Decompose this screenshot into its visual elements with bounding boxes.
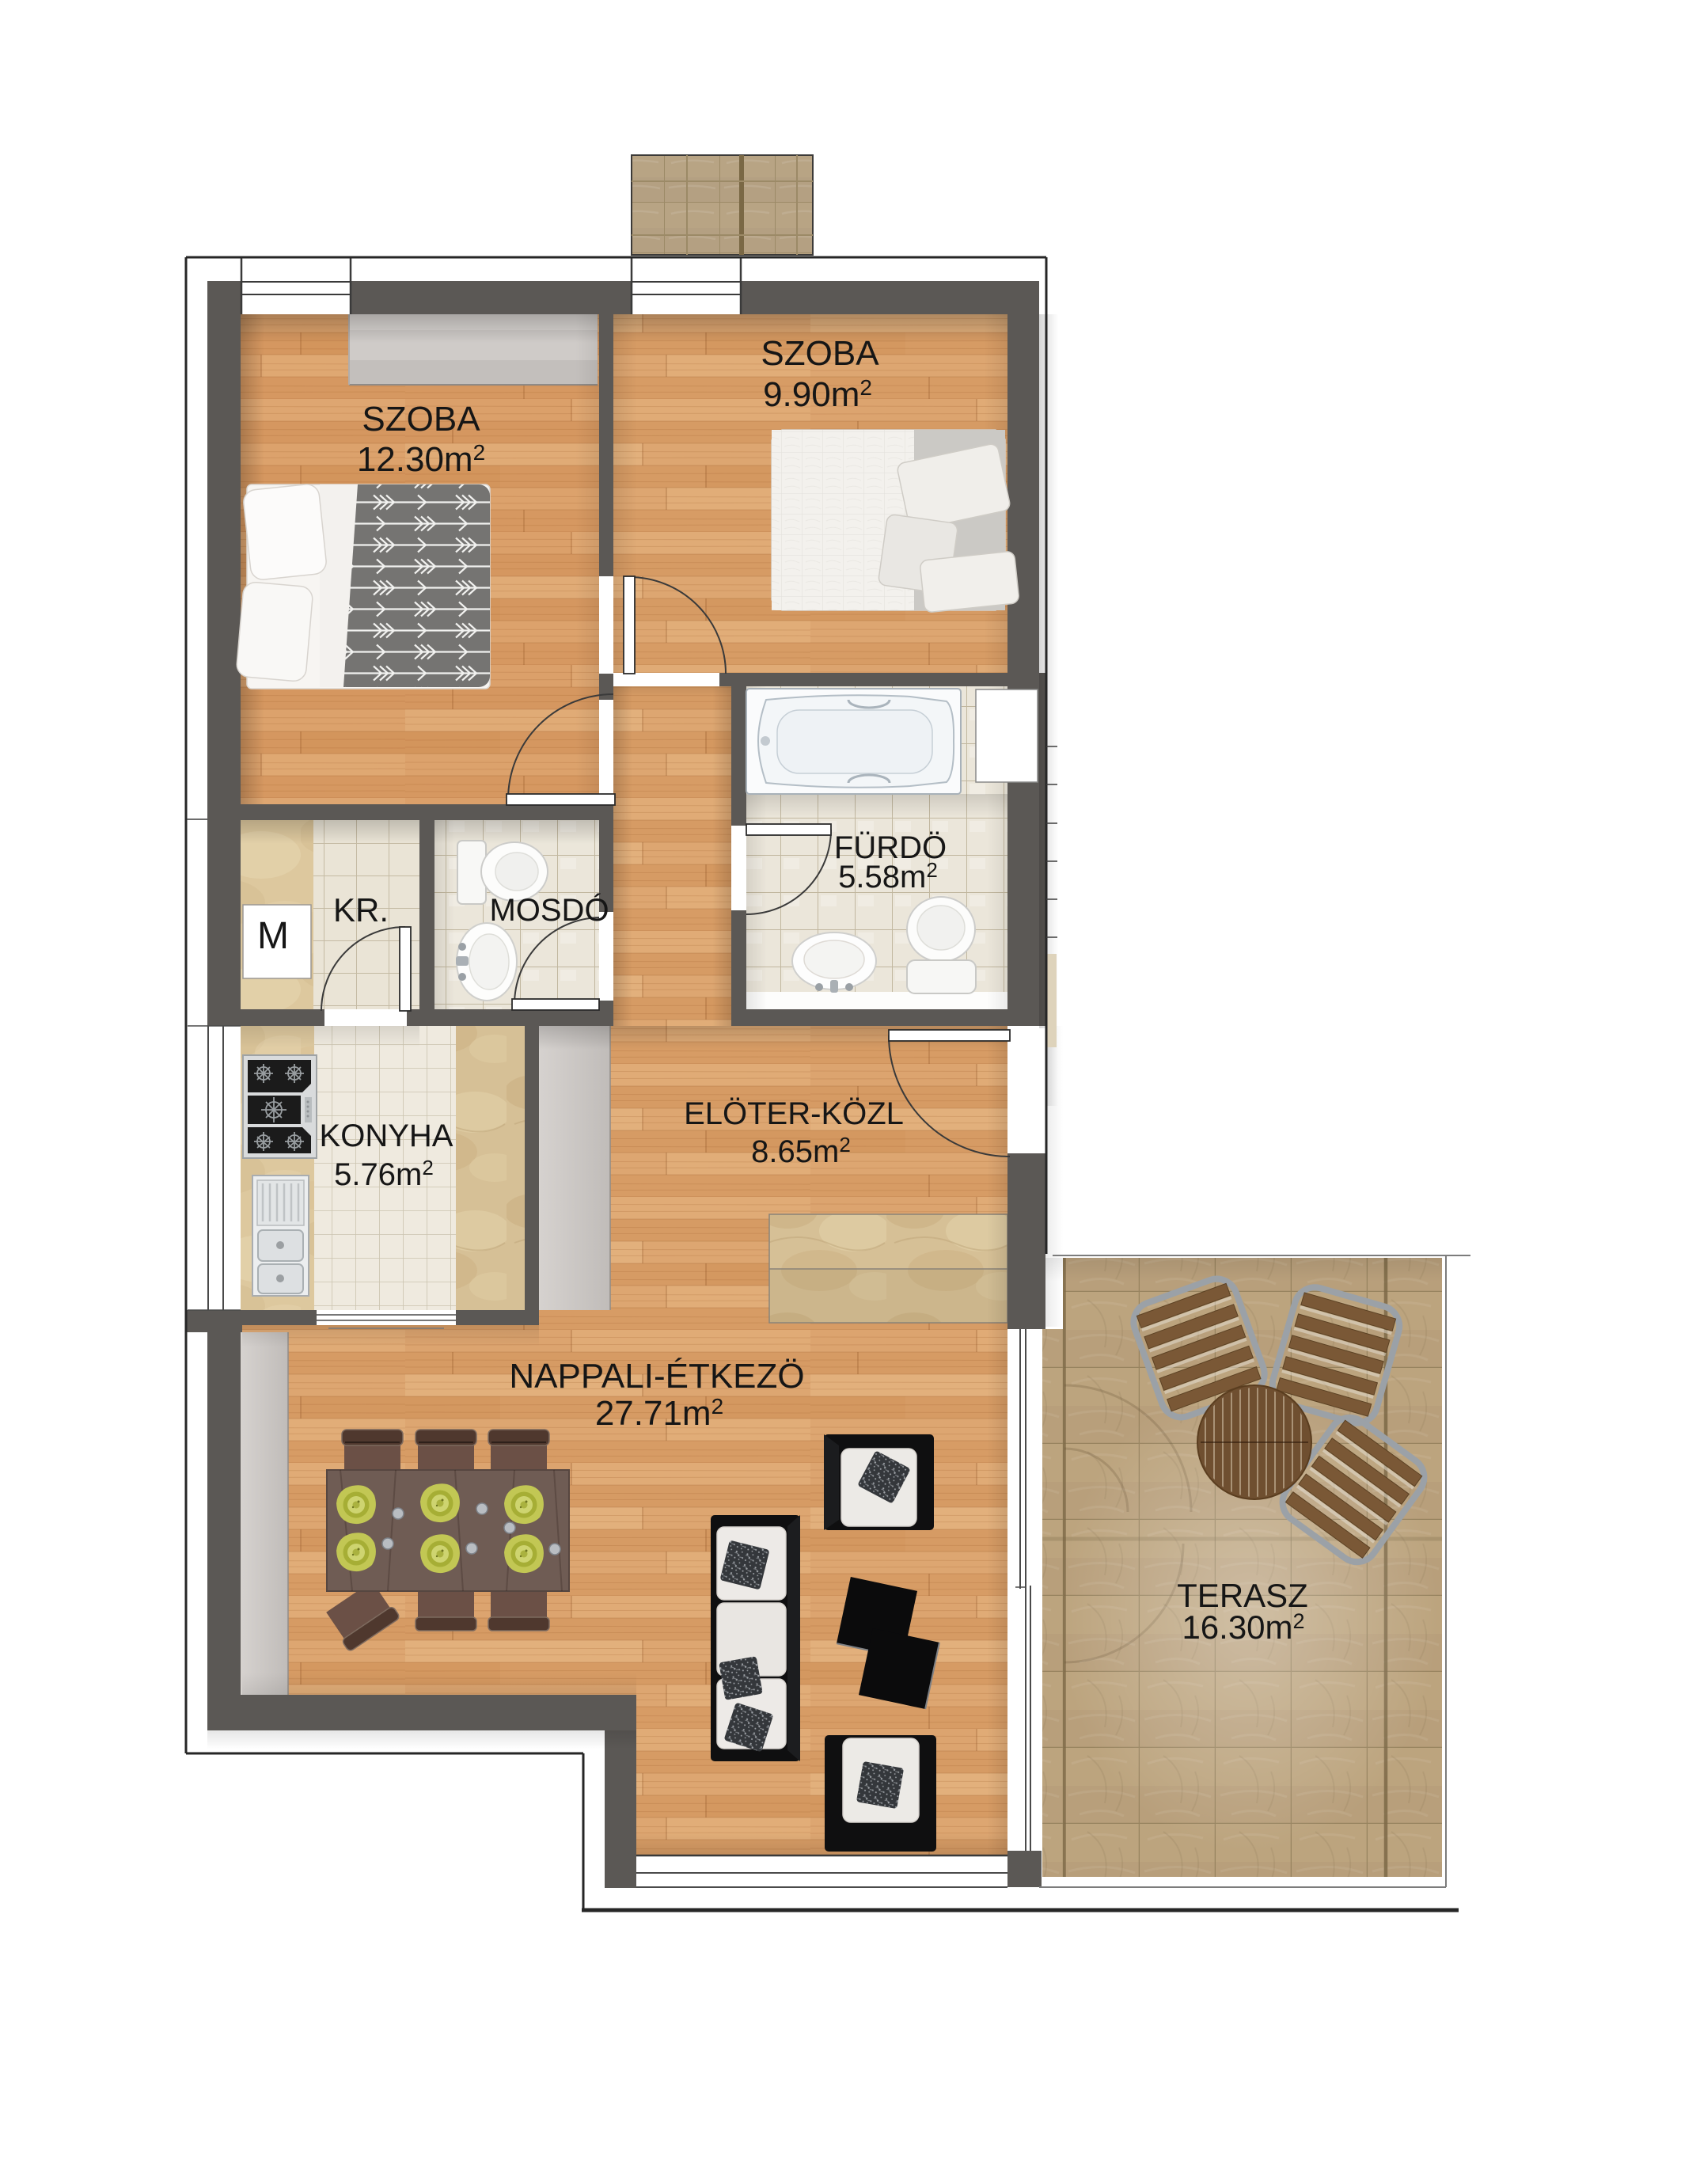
svg-text:16.30m2: 16.30m2 <box>1182 1609 1304 1646</box>
svg-text:KONYHA: KONYHA <box>320 1119 453 1153</box>
svg-text:SZOBA: SZOBA <box>761 334 879 373</box>
svg-text:ELÖTER-KÖZL: ELÖTER-KÖZL <box>684 1096 904 1131</box>
svg-text:27.71m2: 27.71m2 <box>595 1394 723 1433</box>
svg-text:M: M <box>257 915 289 957</box>
svg-text:9.90m2: 9.90m2 <box>763 375 872 414</box>
svg-text:12.30m2: 12.30m2 <box>357 440 485 479</box>
svg-text:SZOBA: SZOBA <box>362 400 480 439</box>
svg-text:KR.: KR. <box>333 891 389 929</box>
svg-text:NAPPALI-ÉTKEZÖ: NAPPALI-ÉTKEZÖ <box>509 1357 804 1396</box>
svg-text:MOSDÓ: MOSDÓ <box>489 892 609 928</box>
svg-text:5.76m2: 5.76m2 <box>334 1156 434 1192</box>
svg-text:8.65m2: 8.65m2 <box>751 1133 851 1169</box>
svg-text:5.58m2: 5.58m2 <box>838 858 938 894</box>
